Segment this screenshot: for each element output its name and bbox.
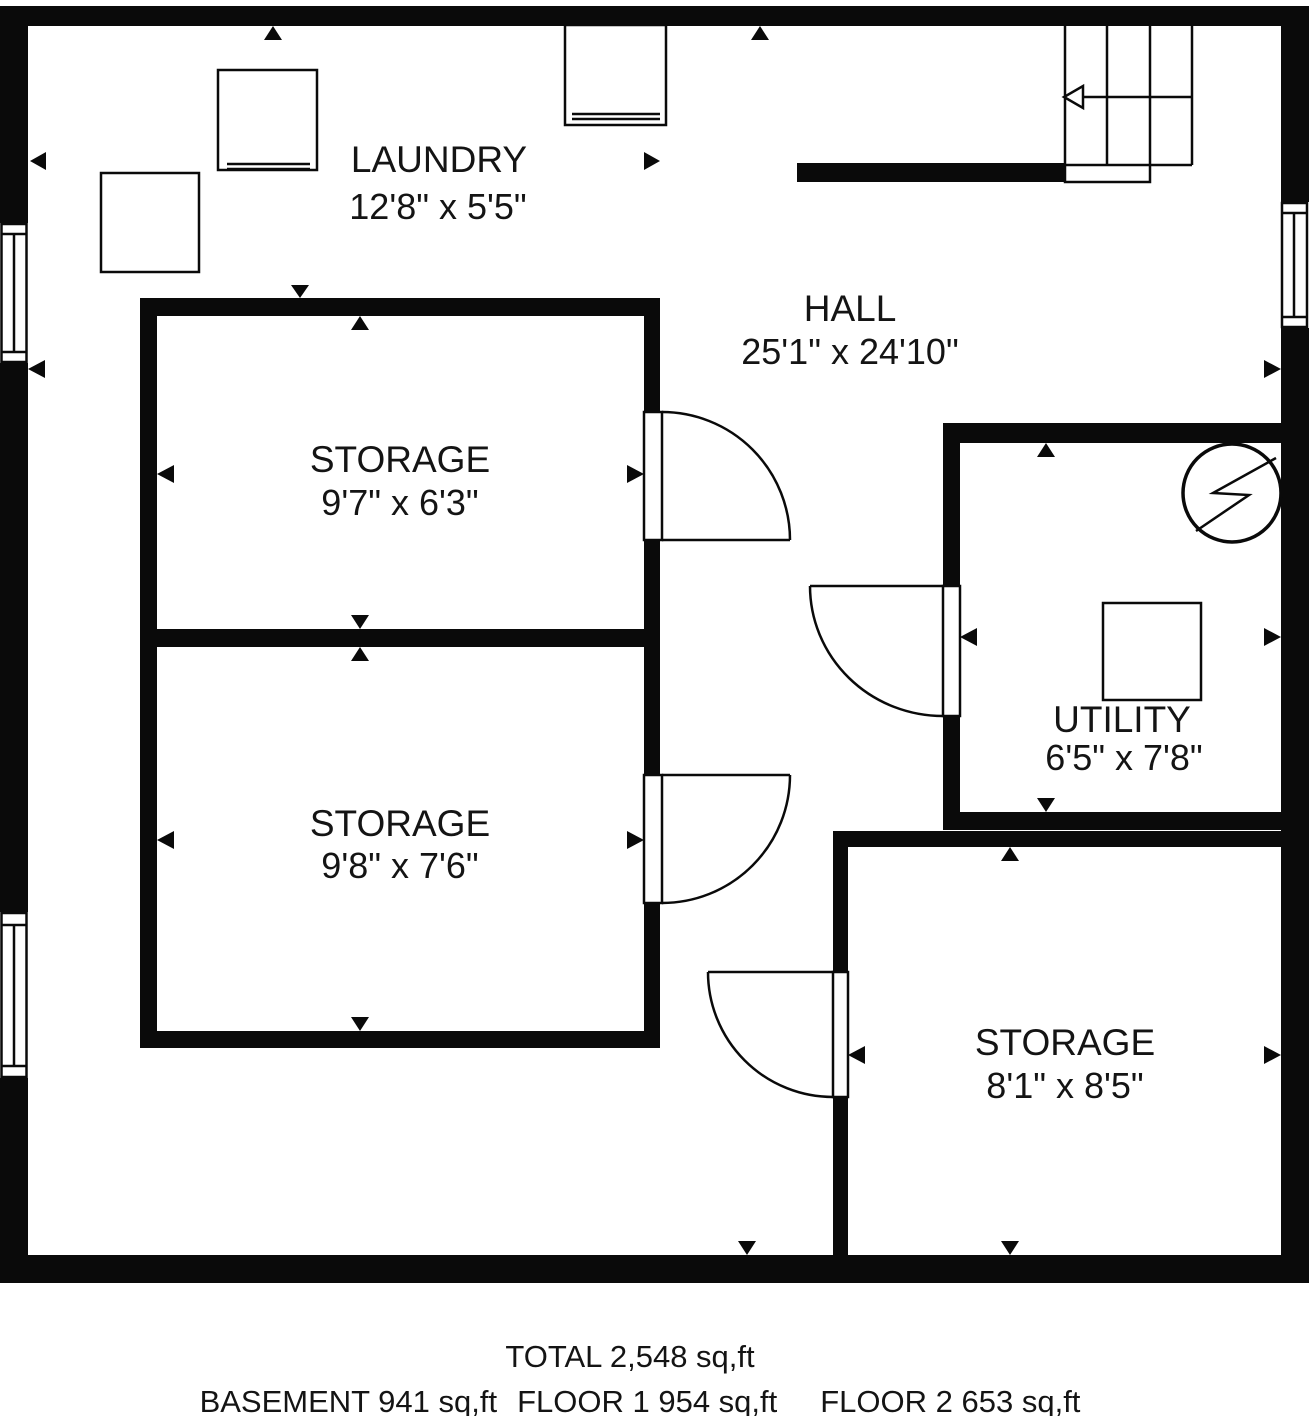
wall: [833, 831, 1281, 847]
wall: [943, 812, 1281, 830]
wall: [0, 26, 28, 223]
floor2-area-text: FLOOR 2 653 sq,ft: [820, 1384, 1080, 1416]
staircase-icon: [1064, 23, 1192, 182]
measure-arrow-icon: [291, 285, 309, 298]
window-icon: [1, 913, 27, 1077]
total-area-text: TOTAL 2,548 sq,ft: [505, 1339, 754, 1375]
room-dims-utility: 6'5" x 7'8": [1045, 737, 1202, 779]
room-dims-laundry: 12'8" x 5'5": [349, 186, 526, 228]
room-label-storage-right: STORAGE: [975, 1022, 1155, 1064]
measure-arrow-icon: [1037, 443, 1055, 457]
measure-arrow-icon: [351, 647, 369, 661]
measure-arrow-icon: [1037, 798, 1055, 812]
measure-arrow-icon: [627, 831, 644, 849]
floor1-area-text: FLOOR 1 954 sq,ft: [517, 1384, 777, 1416]
room-label-storage-lower: STORAGE: [310, 803, 490, 845]
wall: [140, 1031, 660, 1048]
room-dims-hall: 25'1" x 24'10": [741, 331, 958, 373]
window-icon: [1, 224, 27, 362]
appliance-icon: [101, 173, 199, 272]
wall: [833, 1097, 848, 1255]
water-heater-icon: [1103, 603, 1201, 700]
wall: [157, 629, 644, 647]
measure-arrow-icon: [264, 26, 282, 40]
measure-arrow-icon: [157, 465, 174, 483]
wall: [797, 163, 1065, 182]
window-icon: [1282, 203, 1307, 327]
basement-area-text: BASEMENT 941 sq,ft: [200, 1384, 498, 1416]
wall: [1281, 26, 1309, 202]
measure-arrow-icon: [848, 1046, 865, 1064]
room-label-hall: HALL: [804, 288, 897, 330]
measure-arrow-icon: [1001, 1241, 1019, 1255]
room-label-storage-upper: STORAGE: [310, 439, 490, 481]
measure-arrow-icon: [960, 628, 977, 646]
room-dims-storage-right: 8'1" x 8'5": [986, 1065, 1143, 1107]
measure-arrow-icon: [738, 1241, 756, 1255]
floor-areas-row: BASEMENT 941 sq,ft FLOOR 1 954 sq,ft FLO…: [200, 1384, 1081, 1416]
wall: [644, 316, 660, 412]
wall: [943, 423, 1281, 443]
measure-arrow-icon: [351, 1017, 369, 1031]
measure-arrow-icon: [1264, 360, 1281, 378]
measure-arrow-icon: [28, 360, 45, 378]
basement-floorplan: LAUNDRY 12'8" x 5'5" HALL 25'1" x 24'10"…: [0, 0, 1309, 1416]
wall: [0, 1078, 28, 1255]
wall: [644, 903, 660, 1031]
measure-arrow-icon: [1264, 628, 1281, 646]
wall: [0, 363, 28, 912]
appliance-icon: [565, 25, 666, 125]
measure-arrow-icon: [351, 316, 369, 330]
wall: [943, 423, 960, 586]
wall: [943, 716, 960, 813]
wall: [644, 540, 660, 775]
electric-meter-icon: [1183, 444, 1281, 542]
measure-arrow-icon: [644, 152, 660, 170]
stair-direction-arrow-icon: [1064, 86, 1083, 108]
measure-arrow-icon: [30, 152, 46, 170]
measure-arrow-icon: [1001, 847, 1019, 861]
measure-arrow-icon: [627, 465, 644, 483]
room-label-utility: UTILITY: [1053, 699, 1191, 741]
room-dims-storage-lower: 9'8" x 7'6": [321, 845, 478, 887]
measure-arrow-icon: [1264, 1046, 1281, 1064]
door-swing-icon: [810, 586, 960, 716]
measure-arrow-icon: [157, 831, 174, 849]
wall: [833, 847, 848, 972]
room-dims-storage-upper: 9'7" x 6'3": [321, 482, 478, 524]
wall: [140, 316, 157, 1031]
appliance-icon: [218, 70, 317, 170]
wall: [1281, 328, 1309, 1255]
measure-arrow-icon: [751, 26, 769, 40]
door-swing-icon: [708, 972, 848, 1097]
door-swing-icon: [644, 775, 790, 903]
measure-arrow-icon: [351, 615, 369, 629]
door-swing-icon: [644, 412, 790, 540]
wall: [140, 298, 660, 316]
room-label-laundry: LAUNDRY: [351, 139, 527, 181]
wall: [0, 6, 1309, 26]
wall: [0, 1255, 1309, 1283]
